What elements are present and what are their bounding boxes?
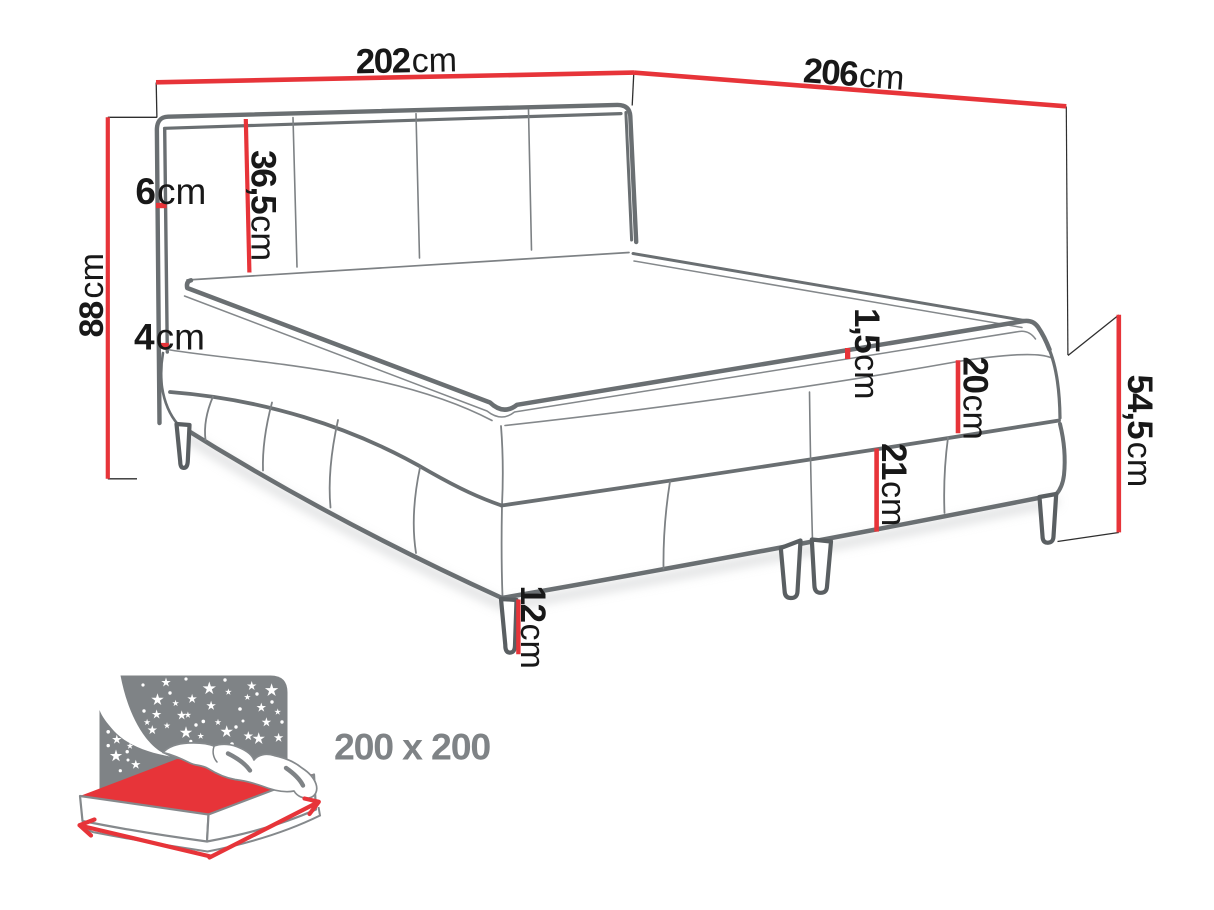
svg-text:36,5cm: 36,5cm xyxy=(244,150,284,261)
svg-text:88cm: 88cm xyxy=(73,253,111,338)
svg-text:200 x 200: 200 x 200 xyxy=(334,726,490,768)
svg-text:6cm: 6cm xyxy=(135,171,206,212)
svg-text:12cm: 12cm xyxy=(513,586,552,669)
svg-text:206cm: 206cm xyxy=(802,51,906,98)
svg-text:1,5cm: 1,5cm xyxy=(847,308,886,399)
svg-text:20cm: 20cm xyxy=(956,357,995,440)
svg-text:4cm: 4cm xyxy=(134,317,205,358)
svg-text:21cm: 21cm xyxy=(874,443,913,526)
svg-text:202cm: 202cm xyxy=(355,40,457,81)
svg-text:54,5cm: 54,5cm xyxy=(1120,375,1159,488)
